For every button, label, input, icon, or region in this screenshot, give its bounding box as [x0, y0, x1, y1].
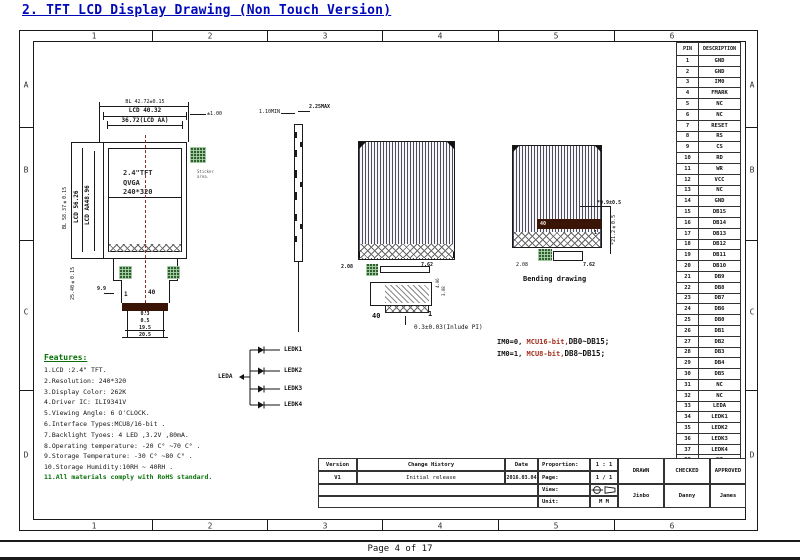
pin-row: 11WR [677, 163, 741, 174]
zone-divider [382, 520, 383, 531]
zone-bottom: 1 [92, 522, 97, 531]
back-pi-note: 0.3±0.03(Inlude PI) [414, 324, 483, 331]
dim-lcd-height: LCD 56.26 [74, 162, 80, 252]
corner-mark [513, 146, 519, 152]
im0-note-2: IM0=1, MCU8-bit,DB8~DB15; [497, 349, 605, 358]
bending-caption: Bending drawing [523, 275, 586, 283]
dim-line [82, 148, 83, 252]
pin-row: 18DB12 [677, 239, 741, 250]
pin-num: 11 [677, 163, 699, 174]
led-circuit-diagram [236, 340, 282, 410]
zone-top: 4 [438, 32, 443, 41]
feature-item: 3.Display Color: 262K [44, 387, 201, 398]
pin-row: 15DB15 [677, 207, 741, 218]
back-dim-left: 2.08 [341, 264, 353, 270]
im0-mcu: MCU16-bit, [527, 338, 569, 346]
pin-desc: DB7 [699, 293, 741, 304]
pin-desc: DB6 [699, 304, 741, 315]
tb-history-label: Change History [357, 458, 505, 471]
pin-num: 7 [677, 120, 699, 131]
back-hatch-band [360, 244, 453, 258]
pin-row: 32NC [677, 390, 741, 401]
back-pin-last: 40 [372, 312, 380, 320]
dim-line [107, 125, 183, 126]
led-cathode-label: LEDK3 [284, 385, 302, 392]
pin-row: 19DB11 [677, 250, 741, 261]
fpc-edge [113, 259, 114, 280]
tb-history-value: Initial release [357, 471, 505, 484]
zone-top: 1 [92, 32, 97, 41]
corner-mark [359, 142, 366, 149]
pin-num: 27 [677, 336, 699, 347]
pin-row: 29DB4 [677, 358, 741, 369]
pin-desc: DB12 [699, 239, 741, 250]
pin-num: 21 [677, 271, 699, 282]
dim-leader [405, 316, 406, 325]
bending-folded-fpc [537, 219, 601, 229]
zone-divider [746, 390, 758, 391]
tb-date-label: Date [505, 458, 538, 471]
pin-num: 6 [677, 109, 699, 120]
pin-desc: DB9 [699, 271, 741, 282]
pin-row: 12VCC [677, 174, 741, 185]
feature-item: 8.Operating temperature: -20 C° ~70 C° . [44, 441, 201, 452]
feature-item: 7.Backlight Tyoes: 4 LED ,3.2V ,80mA. [44, 430, 201, 441]
led-cathode-label: LEDK1 [284, 346, 302, 353]
feature-item: 9.Storage Temperature: -30 C° ~80 C° . [44, 451, 201, 462]
panel-label-line: 240*320 [123, 188, 153, 198]
pin-first-label: 1 [124, 292, 128, 298]
fpc-edge [169, 280, 170, 303]
back-fpc-contact [385, 305, 429, 313]
pin-num: 28 [677, 347, 699, 358]
pin-num: 24 [677, 304, 699, 315]
pin-desc: VCC [699, 174, 741, 185]
pin-num: 12 [677, 174, 699, 185]
zone-divider [746, 127, 758, 128]
pin-table-body: 1GND2GND3IM04FMARK5NC6NC7RESET8RS9CS10RD… [677, 56, 741, 488]
dim-tick [182, 121, 183, 129]
panel-label-line: QVGA [123, 179, 153, 189]
pin-num: 32 [677, 390, 699, 401]
pin-num: 26 [677, 325, 699, 336]
pin-row: 24DB6 [677, 304, 741, 315]
side-fpc-tail [298, 262, 299, 332]
tb-drawn-label: DRAWN [618, 458, 664, 484]
projection-symbol [591, 485, 617, 495]
zone-bottom: 2 [208, 522, 213, 531]
tb-checked-value: Danny [664, 484, 710, 508]
pin-desc: GND [699, 196, 741, 207]
feature-item: 10.Storage Humidity:10RH ~ 40RH . [44, 462, 201, 473]
feature-item: 4.Driver IC: ILI9341V [44, 397, 201, 408]
fpc-green-pad [119, 266, 132, 279]
zone-divider [498, 520, 499, 531]
side-mark [295, 192, 297, 200]
tb-page-label: Page: [538, 471, 590, 484]
features-rohs: 11.All materials comply with RoHS standa… [44, 473, 212, 481]
pin-num: 13 [677, 185, 699, 196]
dim-fpc-height: 25.40±0.15 [71, 258, 76, 308]
pin-num: 5 [677, 99, 699, 110]
fpc-edge [169, 280, 178, 281]
zone-top: 2 [208, 32, 213, 41]
zone-top: 6 [670, 32, 675, 41]
pin-row: 31NC [677, 379, 741, 390]
pin-row: 14GND [677, 196, 741, 207]
page-title: 2. TFT LCD Display Drawing (Non Touch Ve… [22, 3, 391, 18]
pin-row: 10RD [677, 153, 741, 164]
pin-row: 7RESET [677, 120, 741, 131]
pin-num: 19 [677, 250, 699, 261]
pin-num: 33 [677, 401, 699, 412]
pin-desc: DB14 [699, 217, 741, 228]
dim-tail: 9.9 [97, 286, 106, 292]
features-heading: Features: [44, 353, 87, 362]
footer-rule-top [0, 540, 800, 542]
feature-item: 1.LCD :2.4" TFT. [44, 365, 201, 376]
im0-note-1: IM0=0, MCU16-bit,DB0~DB15; [497, 337, 609, 346]
pin-desc: DB1 [699, 325, 741, 336]
pin-row: 9CS [677, 142, 741, 153]
pin-desc: FMARK [699, 88, 741, 99]
dim-leader [298, 111, 310, 112]
zone-bottom: 3 [323, 522, 328, 531]
pin-num: 15 [677, 207, 699, 218]
pin-row: 26DB1 [677, 325, 741, 336]
pin-num: 23 [677, 293, 699, 304]
dim-tick [163, 310, 164, 338]
zone-bottom: 5 [554, 522, 559, 531]
pin-num: 2 [677, 66, 699, 77]
side-mark [295, 214, 297, 221]
fpc-edge [121, 280, 122, 303]
dim-line [71, 142, 72, 259]
back-green-pad [366, 264, 378, 276]
pin-num: 30 [677, 369, 699, 380]
pin-desc: DB15 [699, 207, 741, 218]
zone-divider [614, 520, 615, 531]
dim-leader [580, 206, 610, 207]
dim-line [122, 337, 168, 338]
pin-desc: WR [699, 163, 741, 174]
dim-leader [281, 113, 295, 114]
bending-hatch-band [514, 232, 600, 247]
bending-bar-right: 1 [594, 230, 597, 236]
dim-leader [190, 114, 206, 115]
dim-lcd-width: LCD 40.32 [129, 108, 162, 114]
pin-num: 34 [677, 412, 699, 423]
pin-num: 37 [677, 444, 699, 455]
pin-desc: RD [699, 153, 741, 164]
pin-row: 23DB7 [677, 293, 741, 304]
panel-label-line: 2.4"TFT [123, 169, 153, 179]
pin-desc: GND [699, 56, 741, 67]
pin-last-label: 40 [148, 290, 155, 296]
features-list: 1.LCD :2.4" TFT.2.Resolution: 240*3203.D… [44, 365, 201, 473]
pin-desc: DB5 [699, 369, 741, 380]
pin-desc: DB3 [699, 347, 741, 358]
led-cathode-label: LEDK4 [284, 401, 302, 408]
zone-divider [746, 240, 758, 241]
tb-view-label: View: [538, 484, 590, 496]
dim-line [125, 330, 165, 331]
pin-desc: NC [699, 99, 741, 110]
pin-row: 21DB9 [677, 271, 741, 282]
bending-bar-left: 40 [540, 221, 546, 227]
pin-desc: DB8 [699, 282, 741, 293]
pin-desc: NC [699, 390, 741, 401]
pin-desc: DB11 [699, 250, 741, 261]
tb-approved-label: APPROVED [710, 458, 746, 484]
pin-row: 37LEDK4 [677, 444, 741, 455]
side-mark [295, 236, 297, 242]
pin-num: 25 [677, 315, 699, 326]
pin-num: 4 [677, 88, 699, 99]
im0-db: DB0~DB15; [569, 337, 610, 346]
tb-unit-value: M M [590, 496, 618, 508]
pin-num: 29 [677, 358, 699, 369]
zone-bottom: 4 [438, 522, 443, 531]
fpc-connector-bar [122, 303, 168, 311]
zone-left: A [24, 81, 29, 90]
zone-divider [152, 30, 153, 41]
pin-desc: LEDK2 [699, 423, 741, 434]
dim-tick [186, 112, 187, 120]
fpc-green-pad [167, 266, 180, 279]
zone-divider [382, 30, 383, 41]
pin-row: 1GND [677, 56, 741, 67]
front-green-pad [190, 147, 206, 163]
zone-top: 5 [554, 32, 559, 41]
pin-num: 20 [677, 261, 699, 272]
pin-row: 28DB3 [677, 347, 741, 358]
pin-desc: DB10 [699, 261, 741, 272]
pin-row: 35LEDK2 [677, 423, 741, 434]
corner-mark [595, 146, 601, 152]
dim-aa-height: LCD AA48.96 [85, 158, 91, 253]
pin-row: 2GND [677, 66, 741, 77]
pin-desc: CS [699, 142, 741, 153]
pin-row: 6NC [677, 109, 741, 120]
zone-top: 3 [323, 32, 328, 41]
pin-row: 20DB10 [677, 261, 741, 272]
dim-bottom-1: 0.3 [140, 311, 149, 317]
pin-row: 4FMARK [677, 88, 741, 99]
pin-row: 33LEDA [677, 401, 741, 412]
pin-row: 36LEDK3 [677, 433, 741, 444]
pin-num: 1 [677, 56, 699, 67]
page-footer: Page 4 of 17 [367, 544, 432, 554]
front-sticker-note-2: area. [197, 175, 209, 180]
tb-unit-label: Unit: [538, 496, 590, 508]
feature-item: 2.Resolution: 240*320 [44, 376, 201, 387]
pin-desc: DB4 [699, 358, 741, 369]
back-pin-first: 1 [428, 310, 432, 318]
pin-row: 27DB2 [677, 336, 741, 347]
tb-proportion-label: Proportion: [538, 458, 590, 471]
desc-col-header: DESCRIPTION [699, 43, 741, 56]
zone-left: B [24, 166, 29, 175]
pin-table: PIN DESCRIPTION 1GND2GND3IM04FMARK5NC6NC… [676, 42, 741, 488]
back-fpc-hatch [385, 285, 429, 303]
pin-num: 17 [677, 228, 699, 239]
pin-num: 16 [677, 217, 699, 228]
pin-desc: LEDK3 [699, 433, 741, 444]
dim-side-min: 1.10MIN [259, 109, 280, 115]
pin-num: 31 [677, 379, 699, 390]
corner-mark [447, 142, 454, 149]
dim-line [94, 151, 95, 251]
zone-divider [614, 30, 615, 41]
pin-row: 30DB5 [677, 369, 741, 380]
zone-left: D [24, 451, 29, 460]
pin-row: 17DB13 [677, 228, 741, 239]
dim-tick [127, 310, 128, 338]
pin-desc: IM0 [699, 77, 741, 88]
tb-version-value: V1 [318, 471, 357, 484]
pin-desc: DB0 [699, 315, 741, 326]
pin-desc: DB2 [699, 336, 741, 347]
side-mark [300, 182, 302, 187]
pin-desc: LEDA [699, 401, 741, 412]
dim-tick [107, 121, 108, 129]
pin-num: 8 [677, 131, 699, 142]
pin-num: 9 [677, 142, 699, 153]
pin-num: 35 [677, 423, 699, 434]
im0-prefix: IM0=0, [497, 338, 527, 346]
pin-desc: GND [699, 66, 741, 77]
pin-num: 3 [677, 77, 699, 88]
drawing-sheet: 2. TFT LCD Display Drawing (Non Touch Ve… [0, 0, 800, 560]
im0-mcu: MCU8-bit, [527, 350, 565, 358]
im0-db: DB8~DB15; [564, 349, 605, 358]
dim-plus-minus: ±1.00 [207, 111, 222, 117]
pin-row: 34LEDK1 [677, 412, 741, 423]
front-centerline [145, 135, 146, 313]
dim-leader [104, 293, 114, 294]
tb-approved-value: James [710, 484, 746, 508]
tb-empty-row [318, 484, 538, 496]
pin-num: 14 [677, 196, 699, 207]
pin-num: 10 [677, 153, 699, 164]
zone-divider [152, 520, 153, 531]
pin-desc: NC [699, 379, 741, 390]
front-panel-label: 2.4"TFT QVGA 240*320 [123, 169, 153, 198]
pin-num: 18 [677, 239, 699, 250]
back-dim-right: 7.62 [421, 262, 433, 268]
zone-bottom: 6 [670, 522, 675, 531]
side-mark [295, 132, 297, 138]
feature-item: 6.Interface Types:MCU8/16-bit . [44, 419, 201, 430]
side-mark [295, 170, 297, 178]
bending-connector [553, 251, 583, 261]
zone-right: D [750, 451, 755, 460]
pin-row: 25DB0 [677, 315, 741, 326]
pin-col-header: PIN [677, 43, 699, 56]
pin-desc: LEDK4 [699, 444, 741, 455]
back-view-body [358, 141, 455, 260]
zone-divider [19, 390, 33, 391]
zone-divider [19, 240, 33, 241]
feature-item: 5.Viewing Angle: 6 O'CLOCK. [44, 408, 201, 419]
zone-right: C [750, 308, 755, 317]
dim-aa-width: 36.72(LCD AA) [122, 118, 169, 124]
led-anode-label: LEDA [218, 373, 232, 380]
pin-desc: NC [699, 185, 741, 196]
zone-right: B [750, 166, 755, 175]
pin-row: 3IM0 [677, 77, 741, 88]
zone-divider [267, 30, 268, 41]
zone-right: A [750, 81, 755, 90]
tb-proportion-value: 1 : 1 [590, 458, 618, 471]
pin-table-header: PIN DESCRIPTION [677, 43, 741, 56]
tb-version-label: Version [318, 458, 357, 471]
pin-row: 22DB8 [677, 282, 741, 293]
pin-row: 8RS [677, 131, 741, 142]
pin-row: 16DB14 [677, 217, 741, 228]
zone-divider [498, 30, 499, 41]
tb-view-symbol-cell [590, 484, 618, 496]
dim-bl-width: BL 42.72±0.15 [125, 99, 164, 105]
dim-tick [71, 142, 103, 143]
pin-num: 36 [677, 433, 699, 444]
dim-tick [99, 102, 100, 142]
led-cathode-label: LEDK2 [284, 367, 302, 374]
tb-date-value: 2016.03.04 [505, 471, 538, 484]
tb-page-value: 1 / 1 [590, 471, 618, 484]
dim-bl-height: BL 58.37±0.15 [63, 150, 68, 265]
dim-tick [103, 112, 104, 120]
pin-desc: RS [699, 131, 741, 142]
pin-row: 5NC [677, 99, 741, 110]
back-dim-v2: 3.08 [442, 284, 446, 298]
zone-divider [267, 520, 268, 531]
dim-bottom-2: 0.5 [140, 318, 149, 324]
side-mark [300, 142, 302, 147]
im0-prefix: IM0=1, [497, 350, 527, 358]
pin-desc: LEDK1 [699, 412, 741, 423]
tb-empty-row [318, 496, 538, 508]
side-mark [295, 150, 297, 157]
bending-dim-side: *21.2±0.5 [612, 208, 617, 252]
pin-row: 13NC [677, 185, 741, 196]
pin-num: 22 [677, 282, 699, 293]
back-dim-v1: 4.06 [436, 276, 440, 290]
bending-dim-br: 7.62 [583, 262, 595, 268]
tb-drawn-value: Jinbo [618, 484, 664, 508]
pin-desc: RESET [699, 120, 741, 131]
bending-dim-bl: 2.08 [516, 262, 528, 268]
zone-left: C [24, 308, 29, 317]
side-mark [300, 224, 302, 229]
zone-divider [19, 127, 33, 128]
bending-green-pad [538, 249, 552, 261]
tb-checked-label: CHECKED [664, 458, 710, 484]
dim-side-max: 2.25MAX [309, 104, 330, 110]
pin-desc: DB13 [699, 228, 741, 239]
dim-tick [188, 102, 189, 142]
pin-desc: NC [699, 109, 741, 120]
